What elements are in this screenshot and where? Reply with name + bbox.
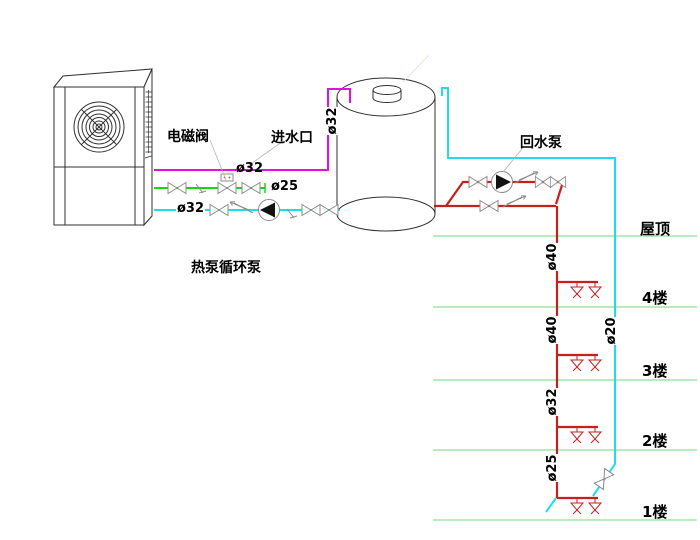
piping-diagram	[0, 0, 700, 540]
tank-top	[337, 78, 435, 116]
label-water-inlet: 进水口	[271, 127, 313, 147]
floor1-drain-stub	[546, 498, 556, 512]
return-pump-icon	[492, 172, 513, 193]
label-dn32-supply-riser: ø32	[326, 107, 340, 135]
shower-icon	[571, 498, 583, 514]
solenoid-leader	[210, 140, 226, 180]
gate-valve-icon	[320, 205, 338, 216]
gate-valve-icon	[168, 183, 186, 194]
gate-valve-icon	[302, 205, 320, 216]
shower-icon	[571, 427, 583, 443]
diagram-canvas: 电磁阀 进水口 回水泵 热泵循环泵 屋顶 4楼 3楼 2楼 1楼 ø32 ø32…	[0, 0, 700, 540]
label-dn25-makeup: ø25	[271, 180, 298, 193]
check-valve-icon	[230, 202, 253, 213]
gate-valve-icon	[469, 177, 487, 188]
shower-icon	[571, 282, 583, 298]
label-return-pump: 回水泵	[520, 132, 562, 152]
label-roof: 屋顶	[640, 218, 670, 239]
label-dn32-hp-return: ø32	[176, 202, 205, 215]
storage-tank	[337, 78, 435, 231]
tank-leader	[403, 55, 429, 82]
shower-icon	[589, 355, 601, 371]
tank-bottom	[337, 197, 435, 231]
shower-icon	[589, 498, 601, 514]
gate-valve-icon	[210, 205, 228, 216]
label-floor2: 2楼	[642, 430, 667, 451]
label-solenoid-valve: 电磁阀	[167, 126, 209, 146]
label-dn32-hp-supply: ø32	[236, 162, 263, 175]
shower-icon	[589, 282, 601, 298]
heat-pump-front-face	[54, 87, 144, 225]
heat-pump-top-face	[54, 69, 152, 87]
makeup-line-valves	[168, 174, 260, 194]
label-dn40-riser-f4: ø40	[546, 316, 560, 344]
gate-valve-icon	[535, 177, 550, 188]
label-dn25-riser-f2: ø25	[546, 454, 560, 482]
label-floor4: 4楼	[642, 287, 667, 308]
fan-icon	[74, 102, 124, 152]
label-circulation-pump: 热泵循环泵	[191, 257, 261, 277]
shower-heads	[571, 282, 601, 514]
gate-valve-icon	[550, 177, 565, 188]
gate-valve-icon	[242, 183, 260, 194]
label-floor3: 3楼	[642, 360, 667, 381]
gate-valve-icon	[480, 201, 498, 212]
label-floor1: 1楼	[642, 501, 667, 522]
label-dn40-riser-roof: ø40	[546, 243, 560, 271]
label-dn20-return-riser: ø20	[605, 317, 619, 345]
heat-pump-unit	[54, 69, 152, 225]
circulation-pump-icon	[259, 200, 280, 221]
label-dn32-riser-f3: ø32	[546, 388, 560, 416]
shower-icon	[589, 427, 601, 443]
return-pump-leader	[503, 149, 522, 172]
solenoid-valve-icon	[218, 174, 236, 194]
shower-icon	[571, 355, 583, 371]
